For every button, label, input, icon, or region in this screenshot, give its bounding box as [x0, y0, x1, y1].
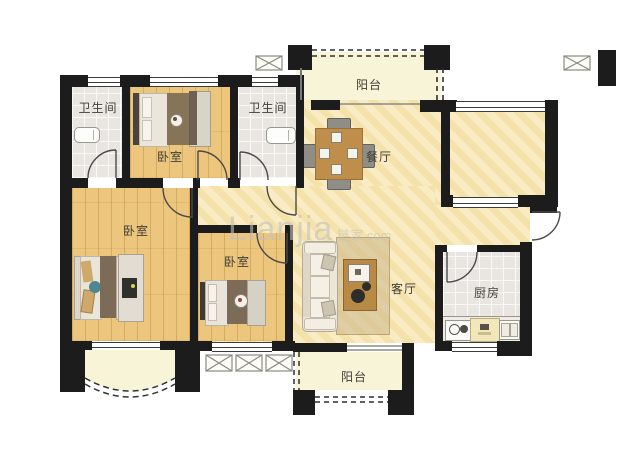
balcony-pillar [288, 45, 312, 70]
balcony-pillar [60, 345, 85, 392]
bed-icon [133, 91, 209, 145]
wall [441, 103, 450, 205]
balcony-pillar [424, 45, 450, 70]
window [453, 197, 518, 208]
toilet-icon [266, 127, 296, 144]
window [150, 77, 218, 87]
wall [272, 341, 295, 351]
room-label-bathroom-right: 卫生间 [248, 102, 287, 114]
tv-cabinet-icon [118, 254, 142, 320]
wall [311, 100, 340, 110]
room-label-bedroom-middle: 卧室 [224, 256, 250, 268]
wall [60, 178, 88, 188]
wall [122, 85, 130, 178]
watermark-domain: 链家.com [337, 225, 391, 244]
balcony-pillar [175, 345, 200, 392]
wall [545, 100, 558, 207]
wall [230, 85, 238, 178]
room-label-kitchen: 厨房 [474, 287, 500, 299]
wall [200, 341, 212, 351]
kitchen-counter-icon [443, 316, 520, 342]
coffee-table-icon [343, 259, 375, 309]
wall [441, 195, 453, 207]
wall [435, 245, 443, 350]
balcony-pillar [388, 390, 412, 415]
toilet-icon [74, 127, 100, 143]
room-label-living: 客厅 [391, 283, 417, 295]
window [88, 77, 120, 87]
wall [435, 245, 447, 252]
floor-plan: 卫生间 卧室 卫生间 阳台 餐厅 卧室 卧室 客厅 厨房 阳台 Lianjia … [0, 0, 618, 463]
wall [435, 341, 452, 351]
window [92, 342, 160, 352]
wall [228, 178, 240, 188]
balcony-pillar [293, 390, 315, 415]
room-label-balcony-south: 阳台 [341, 371, 367, 383]
wall [190, 188, 198, 348]
curved-balcony-floor [85, 350, 175, 391]
wall [296, 85, 304, 188]
flex-room-floor [450, 110, 545, 197]
wall [520, 242, 532, 356]
room-label-dining: 餐厅 [366, 151, 392, 163]
window [212, 342, 272, 352]
wall [60, 75, 88, 87]
room-label-balcony-north: 阳台 [356, 79, 382, 91]
room-label-bathroom-left: 卫生间 [78, 102, 117, 114]
wall [530, 205, 557, 213]
window [456, 101, 545, 112]
sofa-icon [302, 241, 336, 330]
entry-hall-floor [435, 205, 530, 245]
bed-icon [200, 278, 266, 324]
dining-table-icon [303, 118, 373, 188]
watermark-brand: Lianjia [228, 210, 333, 249]
room-label-bedroom-master: 卧室 [123, 225, 149, 237]
wall [193, 178, 200, 188]
watermark: Lianjia 链家.com [228, 210, 391, 249]
window [252, 77, 278, 87]
wall [116, 178, 163, 188]
wall [497, 341, 532, 356]
window [452, 342, 497, 352]
room-label-bedroom-top: 卧室 [157, 151, 183, 163]
corner-pillar [598, 50, 616, 86]
wall [293, 343, 347, 352]
wall [420, 100, 443, 112]
